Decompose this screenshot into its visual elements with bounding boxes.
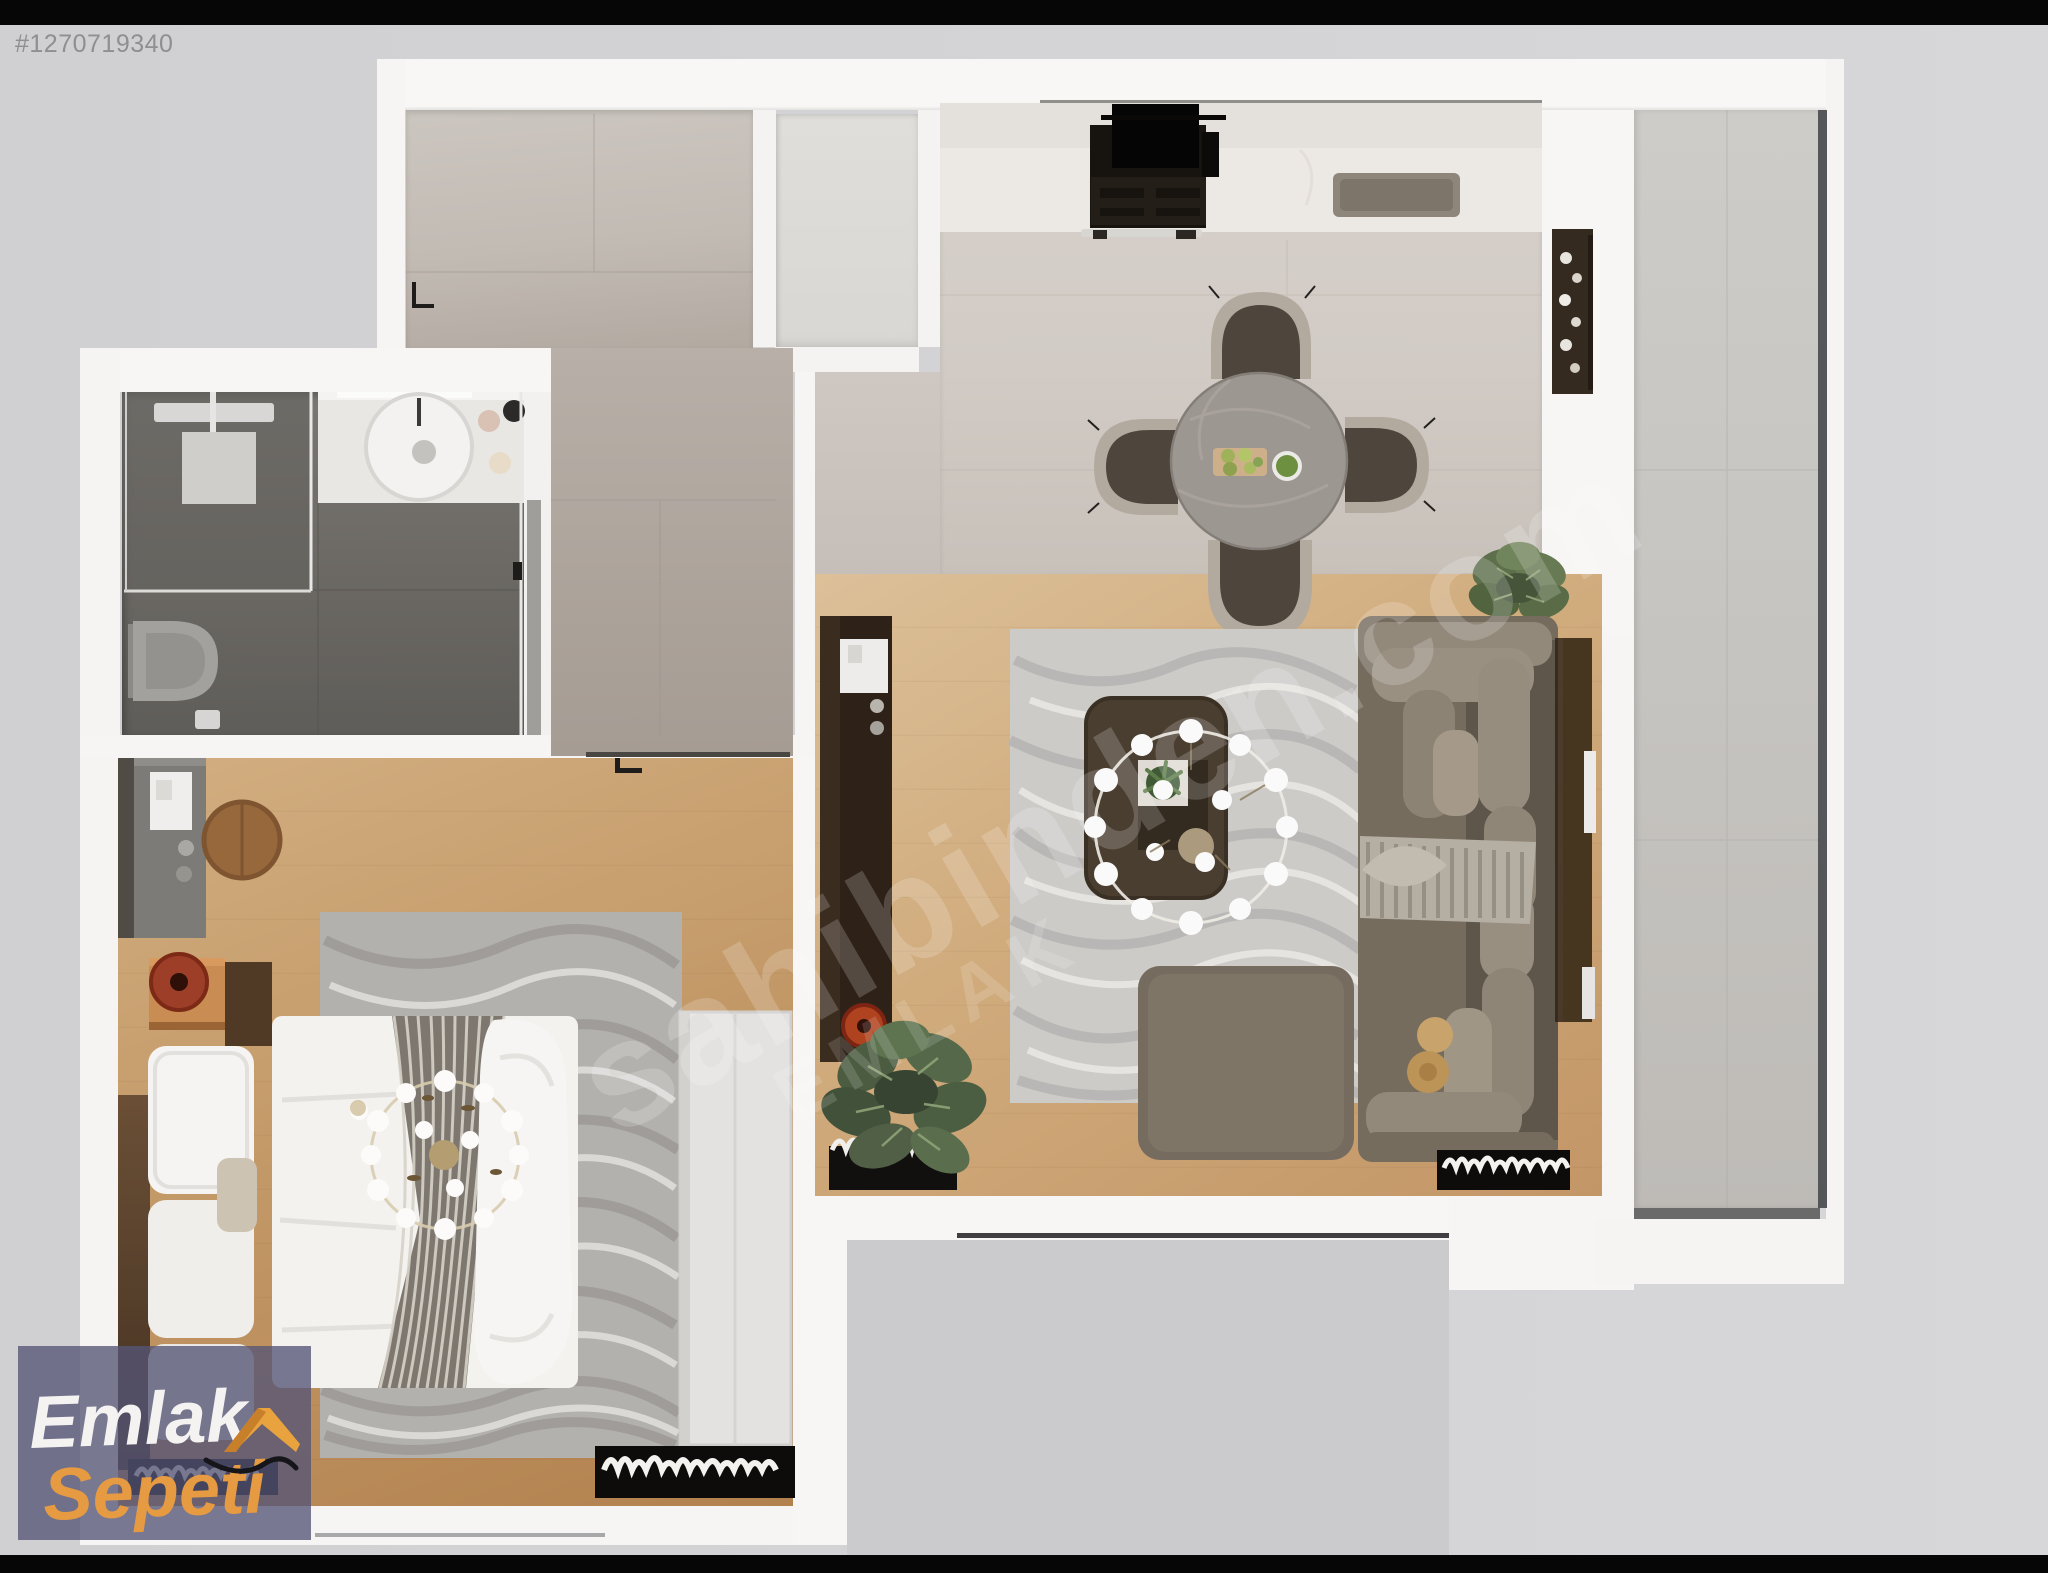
svg-text:Sepeti: Sepeti [42, 1445, 268, 1536]
